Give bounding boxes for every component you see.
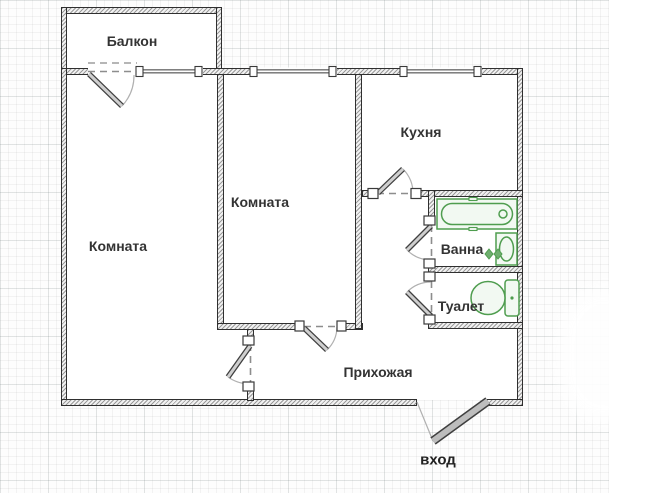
floor-plan: Балкон Комната Комната Кухня Ванна Туале…: [0, 0, 663, 493]
kitchen-door-icon: [368, 169, 421, 199]
entrance-door-icon: [417, 401, 488, 441]
room-label-bath: Ванна: [441, 241, 484, 257]
bathtub-icon: [437, 198, 517, 231]
room-label-balcony: Балкон: [107, 33, 158, 49]
room-label-entrance: вход: [420, 452, 456, 469]
toilet-door-icon: [407, 272, 435, 324]
washbasin-icon: [485, 233, 517, 265]
wall-openings: [88, 68, 482, 385]
room-label-left-room: Комната: [89, 238, 147, 254]
room-label-kitchen: Кухня: [401, 124, 442, 140]
room-label-middle-room: Комната: [231, 194, 289, 210]
bath-door-icon: [407, 216, 435, 268]
room-label-toilet: Туалет: [438, 298, 485, 314]
room-label-hallway: Прихожая: [343, 364, 412, 380]
